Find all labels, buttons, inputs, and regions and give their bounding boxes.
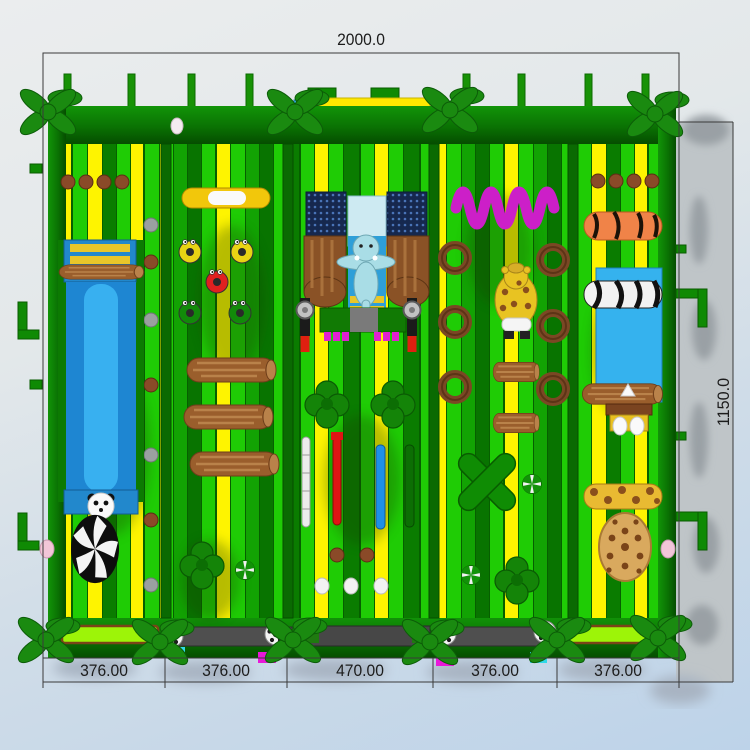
tiger-log — [584, 212, 662, 240]
top-wall — [48, 106, 676, 144]
pink-egg-left — [40, 540, 54, 558]
panda-face — [88, 493, 115, 519]
plan-render — [0, 0, 750, 750]
yellow-log — [182, 188, 270, 208]
wood-log-icon — [190, 452, 279, 476]
pink-egg-right — [661, 540, 675, 558]
render-canvas: 2000.0 1150.0 376.00 376.00 470.00 376.0… — [0, 0, 750, 750]
zebra-swirl-dome — [71, 515, 119, 583]
wood-log-icon — [187, 358, 276, 382]
zebra-roller — [584, 281, 662, 308]
climbing-mesh — [306, 192, 346, 236]
dimension-bottom-label-1: 376.00 — [53, 662, 154, 680]
pinwheel-candy-icon — [462, 566, 481, 585]
pinwheel-candy-icon — [236, 561, 255, 580]
leopard-dome — [599, 513, 651, 581]
inflatable-park — [14, 74, 707, 669]
dimension-bottom-label-3: 470.00 — [309, 662, 410, 680]
egg-on-wall — [171, 118, 183, 134]
dimension-bottom-label-5: 376.00 — [567, 662, 668, 680]
climbing-mesh — [387, 192, 427, 236]
dimension-bottom-label-2: 376.00 — [175, 662, 276, 680]
slide-structure — [58, 240, 144, 519]
wood-log-icon — [184, 405, 273, 429]
giraffe-log — [584, 484, 662, 509]
dimension-bottom-label-4: 376.00 — [444, 662, 545, 680]
pinwheel-candy-icon — [523, 475, 542, 494]
wood-log-icon — [493, 413, 539, 432]
dimension-top-label: 2000.0 — [306, 31, 416, 49]
dimension-right-label: 1150.0 — [715, 340, 733, 464]
wood-log-icon — [493, 362, 539, 381]
